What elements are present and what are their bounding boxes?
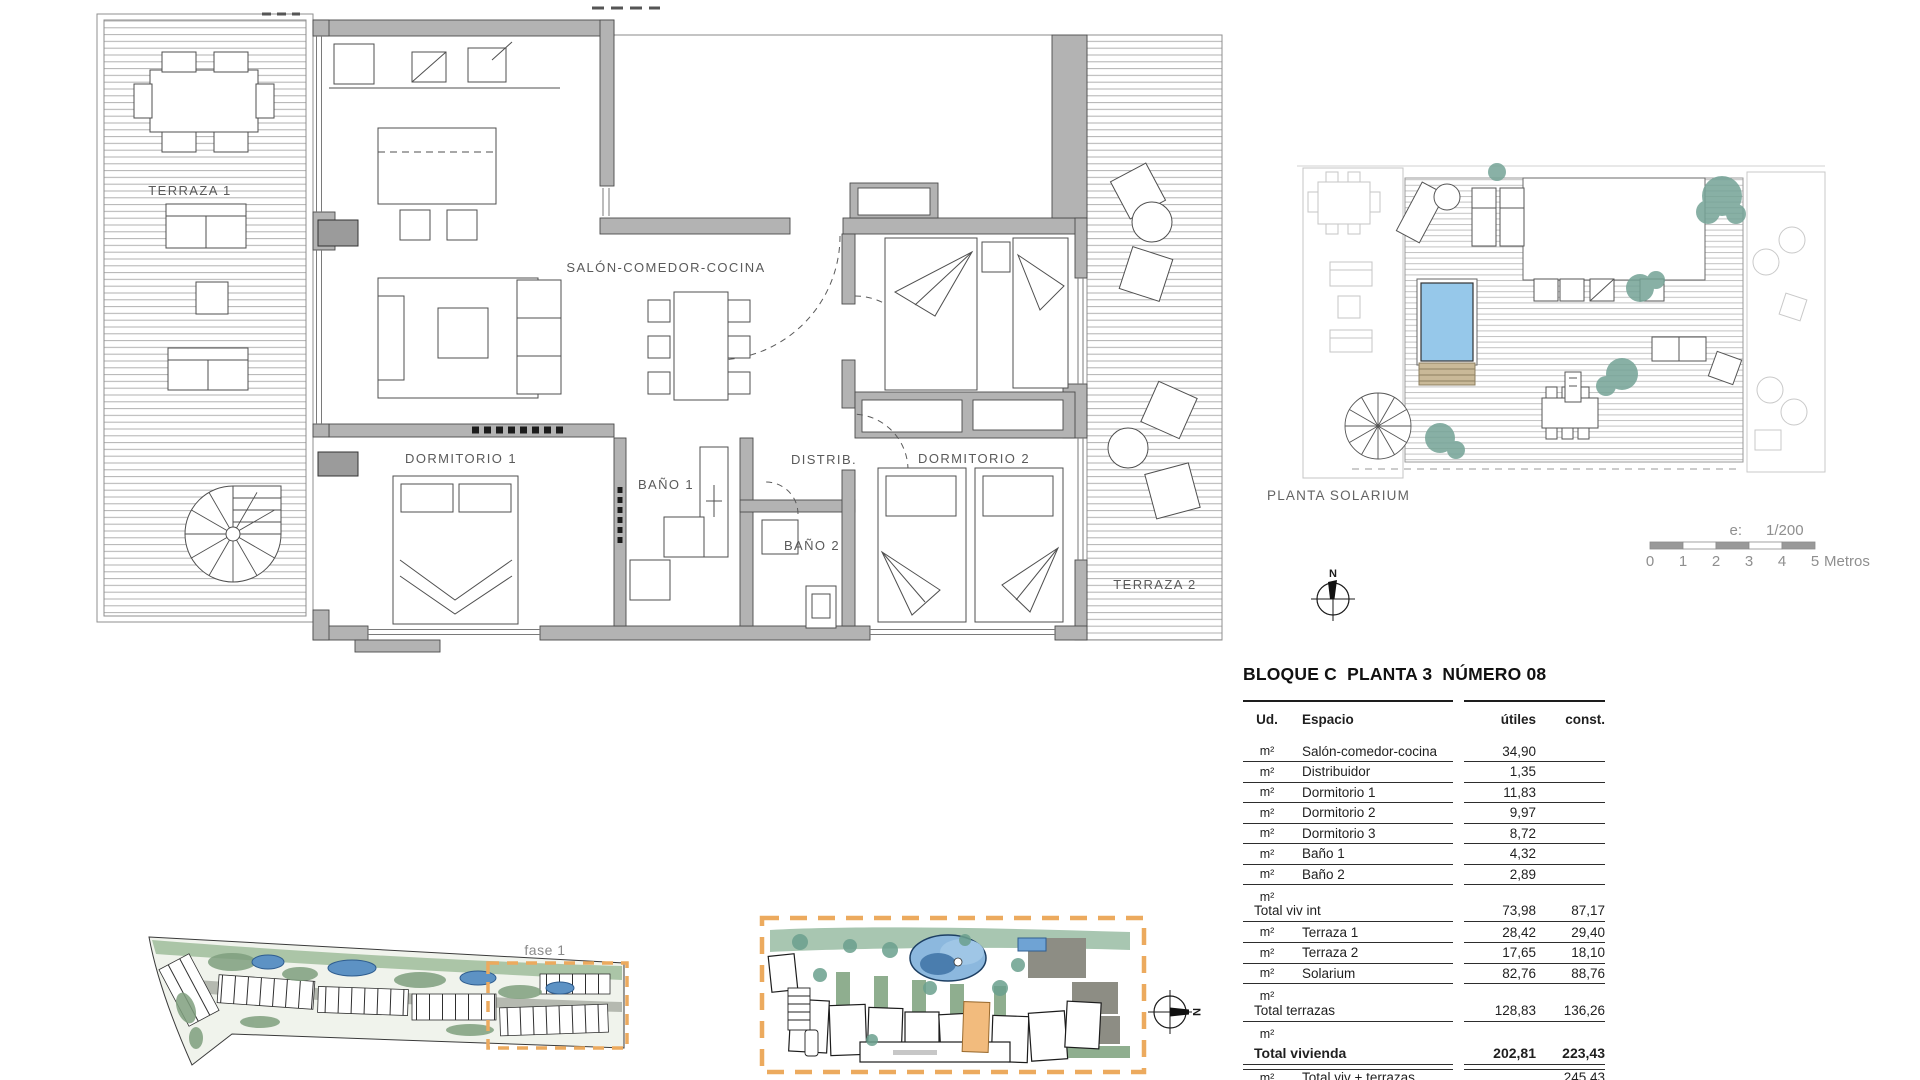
table-row: m²Dormitorio 1 11,83 [1243,783,1605,804]
table-clipped-row: m²Total viv + terrazas ZZCC 245,43 [1243,1070,1605,1080]
terraza2-deck [1087,35,1222,640]
solarium-void [1523,178,1705,280]
bed-dormitorio1 [393,476,518,624]
col-const: const. [1536,712,1605,727]
svg-text:2: 2 [1712,553,1720,570]
table-grand-total-row: m²Total vivienda 202,81223,43 [1243,1022,1605,1065]
bathroom2-fixtures [762,520,836,628]
svg-text:0: 0 [1646,553,1654,570]
table-row: m²Dormitorio 3 8,72 [1243,824,1605,845]
room-label-salon: SALÓN-COMEDOR-COCINA [566,260,765,275]
compass-scale-annotation: N e: 1/200 0 1 2 3 4 5 Metros [1300,515,1900,630]
document-canvas: TERRAZA 1 SALÓN-COMEDOR-COCINA DORMITORI… [0,0,1920,1080]
col-utiles: útiles [1464,712,1536,727]
room-label-terraza2: TERRAZA 2 [1113,577,1196,592]
kitchen [329,42,560,88]
kitchen-island [378,128,496,240]
svg-text:Metros: Metros [1824,553,1870,570]
highlighted-unit [962,1002,990,1053]
solarium-pool [1417,279,1477,385]
spiral-staircase [185,486,281,582]
east-compass-icon: N [1148,990,1202,1034]
table-row: m²Terraza 1 28,4229,40 [1243,922,1605,943]
col-ud: Ud. [1243,712,1291,727]
svg-text:1/200: 1/200 [1766,522,1804,539]
svg-text:1: 1 [1679,553,1687,570]
table-row: m²Baño 1 4,32 [1243,844,1605,865]
room-label-distrib: DISTRIB. [791,452,857,467]
svg-text:N: N [1190,1008,1202,1016]
main-floor-plan: TERRAZA 1 SALÓN-COMEDOR-COCINA DORMITORI… [90,0,1235,665]
beds-dormitorio2 [878,468,1063,622]
room-label-dormitorio2: DORMITORIO 2 [918,451,1030,466]
col-espacio: Espacio [1291,712,1453,727]
room-label-bano1: BAÑO 1 [638,477,694,492]
table-row: m²Salón-comedor-cocina 34,90 [1243,742,1605,763]
room-label-dormitorio1: DORMITORIO 1 [405,451,517,466]
room-label-bano2: BAÑO 2 [784,538,840,553]
solarium-right-wing [1747,172,1825,472]
bathroom1-fixtures [630,447,728,600]
scale-bar: e: 1/200 0 1 2 3 4 5 Metros [1646,522,1870,570]
solarium-caption: PLANTA SOLARIUM [1267,488,1410,503]
solarium-plan: PLANTA SOLARIUM [1260,150,1850,505]
area-table-title: BLOQUE C PLANTA 3 NÚMERO 08 [1243,664,1605,700]
room-label-terraza1: TERRAZA 1 [148,183,231,198]
site-detail-plan: N [755,910,1205,1080]
table-row: m²Distribuidor 1,35 [1243,762,1605,783]
table-row: m²Terraza 2 17,6518,10 [1243,943,1605,964]
title-rule [1243,700,1605,702]
table-row: m²Baño 2 2,89 [1243,865,1605,886]
beds-dormitorio3 [885,238,1068,390]
solarium-spiral-stair [1345,393,1411,459]
table-total-row: m²Total viv int 73,9887,17 [1243,885,1605,922]
svg-text:3: 3 [1745,553,1753,570]
svg-text:N: N [1329,568,1337,580]
area-table: BLOQUE C PLANTA 3 NÚMERO 08 Ud. Espacio … [1243,664,1605,1080]
fase1-label: fase 1 [524,942,565,958]
ac-units [318,220,358,476]
dining-table [648,292,750,400]
svg-text:4: 4 [1778,553,1786,570]
table-row: m²Solarium 82,7688,76 [1243,964,1605,985]
area-table-header: Ud. Espacio útiles const. [1243,702,1605,742]
table-row: m²Dormitorio 2 9,97 [1243,803,1605,824]
north-compass-icon: N [1311,568,1355,621]
table-total-row: m²Total terrazas 128,83136,26 [1243,984,1605,1022]
svg-text:5: 5 [1811,553,1819,570]
dimension-ticks [262,8,660,14]
sofa [378,278,561,398]
site-overview-plan: fase 1 [140,925,640,1075]
svg-text:e:: e: [1729,522,1742,539]
